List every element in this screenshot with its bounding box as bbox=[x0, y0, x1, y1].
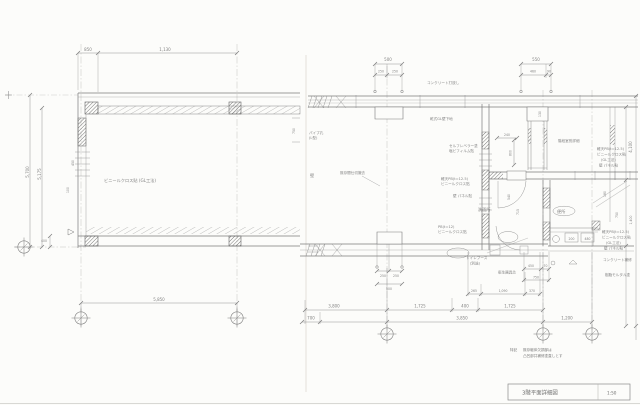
label-booth-2: (別途) bbox=[470, 261, 481, 266]
dim-200: 200 bbox=[569, 237, 575, 241]
note-right2-1: 軽天PB(t=12.5) bbox=[602, 229, 630, 234]
dim-3800: 3,800 bbox=[328, 304, 340, 309]
note-right2-4: 壁 パネル貼 bbox=[604, 246, 624, 251]
note-line-2: 凸凹部共補修塗直しとす bbox=[523, 353, 563, 358]
label-pipe-1: パイプ孔 bbox=[309, 130, 324, 135]
label-pb-2: ビニールクロス貼 bbox=[438, 229, 467, 234]
dim-715: 715 bbox=[516, 209, 520, 215]
dim-750: 750 bbox=[615, 212, 619, 218]
dim-750b: 750 bbox=[533, 276, 539, 280]
dim-1725a: 1,725 bbox=[414, 304, 426, 309]
note-head: 特記 bbox=[510, 347, 518, 352]
label-fixture: 衛生器具芯 bbox=[498, 270, 516, 275]
dim-400b: 400 bbox=[461, 304, 469, 309]
dim-b250a: 250 bbox=[380, 274, 386, 278]
dim-90: 90 bbox=[547, 70, 551, 74]
dim-460: 460 bbox=[530, 70, 536, 74]
label-conc-repair: コンクリート補修 bbox=[603, 257, 632, 262]
dim-1200: 1,200 bbox=[561, 316, 573, 321]
dim-450: 450 bbox=[528, 264, 534, 268]
dim-130: 130 bbox=[538, 111, 542, 117]
label-keiten-1: 軽天PB(t=12.5) bbox=[441, 176, 469, 181]
dim-b500: 500 bbox=[386, 287, 392, 291]
label-mortar: 樹脂モルタル塗 bbox=[605, 272, 631, 277]
dim-right-750: 750 bbox=[292, 128, 296, 134]
room-toilet: 便所 bbox=[557, 208, 565, 215]
dim-370: 370 bbox=[529, 289, 535, 293]
label-booth-1: トイレブース bbox=[466, 255, 488, 260]
dim-250b: 250 bbox=[392, 70, 398, 74]
dim-top-1: 850 bbox=[84, 47, 92, 52]
dim-1400: 1,400 bbox=[629, 216, 633, 225]
dim-100: 100 bbox=[66, 187, 70, 193]
dim-top-2: 1,130 bbox=[159, 47, 171, 52]
dim-265: 265 bbox=[471, 289, 477, 293]
label-self-level-2: 塩ビフィルム貼 bbox=[449, 148, 474, 153]
label-self-level-1: セルフレベラー塗 bbox=[449, 143, 478, 148]
dim-250a: 250 bbox=[378, 70, 384, 74]
label-keiten-2: ビニールクロス貼 bbox=[441, 181, 470, 186]
dim-700: 700 bbox=[307, 316, 315, 321]
label-dry-wall: 乾式GL壁下地 bbox=[430, 116, 453, 121]
finish-note: ビニールクロス貼 (GL工法) bbox=[104, 177, 156, 184]
dim-480: 480 bbox=[585, 237, 591, 241]
note-right2-3: (GL工法) bbox=[606, 240, 621, 245]
label-demolish: 既存間仕切撤去 bbox=[340, 170, 366, 175]
label-wall: 壁 bbox=[310, 172, 314, 178]
dim-left-inner: 5,175 bbox=[37, 168, 42, 180]
note-right-2: ビニールクロス貼 bbox=[597, 152, 626, 157]
room-washroom: 洗面所 bbox=[478, 206, 491, 213]
dim-1090: 1,090 bbox=[499, 289, 508, 293]
note-right2-2: ビニールクロス貼 bbox=[602, 235, 631, 240]
dim-bottom-total: 5,850 bbox=[153, 297, 165, 302]
label-pb-1: PB(t=12) bbox=[438, 225, 455, 229]
dim-450: 450 bbox=[71, 160, 75, 166]
label-panel: 壁 パネル貼 bbox=[453, 193, 473, 198]
label-stair: 階段室別詳細 bbox=[558, 138, 580, 143]
dim-4100: 4,100 bbox=[628, 141, 633, 153]
note-right-3: (GL工法) bbox=[601, 157, 616, 162]
drawing-sheet: 850 1,130 5,700 5,175 400 450 100 5,850 … bbox=[0, 0, 640, 405]
note-right-1: 軽天PB(t=12.5) bbox=[597, 146, 625, 151]
note-right-4: 壁 パネル貼 bbox=[599, 163, 619, 168]
dim-left-outer: 5,700 bbox=[25, 166, 30, 178]
dim-180: 180 bbox=[603, 191, 607, 197]
dim-b250b: 250 bbox=[393, 274, 399, 278]
dim-500: 500 bbox=[384, 57, 392, 62]
drawing-title: 3階平面詳細図 bbox=[522, 389, 558, 397]
label-concrete: コンクリート打放し bbox=[427, 80, 460, 85]
dim-400: 400 bbox=[41, 239, 47, 243]
dim-800: 800 bbox=[509, 150, 513, 156]
dim-240: 240 bbox=[504, 133, 510, 137]
floor-plan-drawing: 850 1,130 5,700 5,175 400 450 100 5,850 … bbox=[0, 0, 640, 405]
drawing-scale: 1:50 bbox=[607, 391, 617, 396]
dim-3850: 3,850 bbox=[456, 316, 468, 321]
dim-550: 550 bbox=[532, 57, 540, 62]
dim-540: 540 bbox=[507, 194, 511, 200]
label-pipe-2: (L型) bbox=[309, 135, 318, 140]
dim-70: 70 bbox=[544, 264, 548, 268]
note-line-1: 既存躯体欠損部は bbox=[523, 347, 552, 352]
dim-1725b: 1,725 bbox=[504, 304, 516, 309]
